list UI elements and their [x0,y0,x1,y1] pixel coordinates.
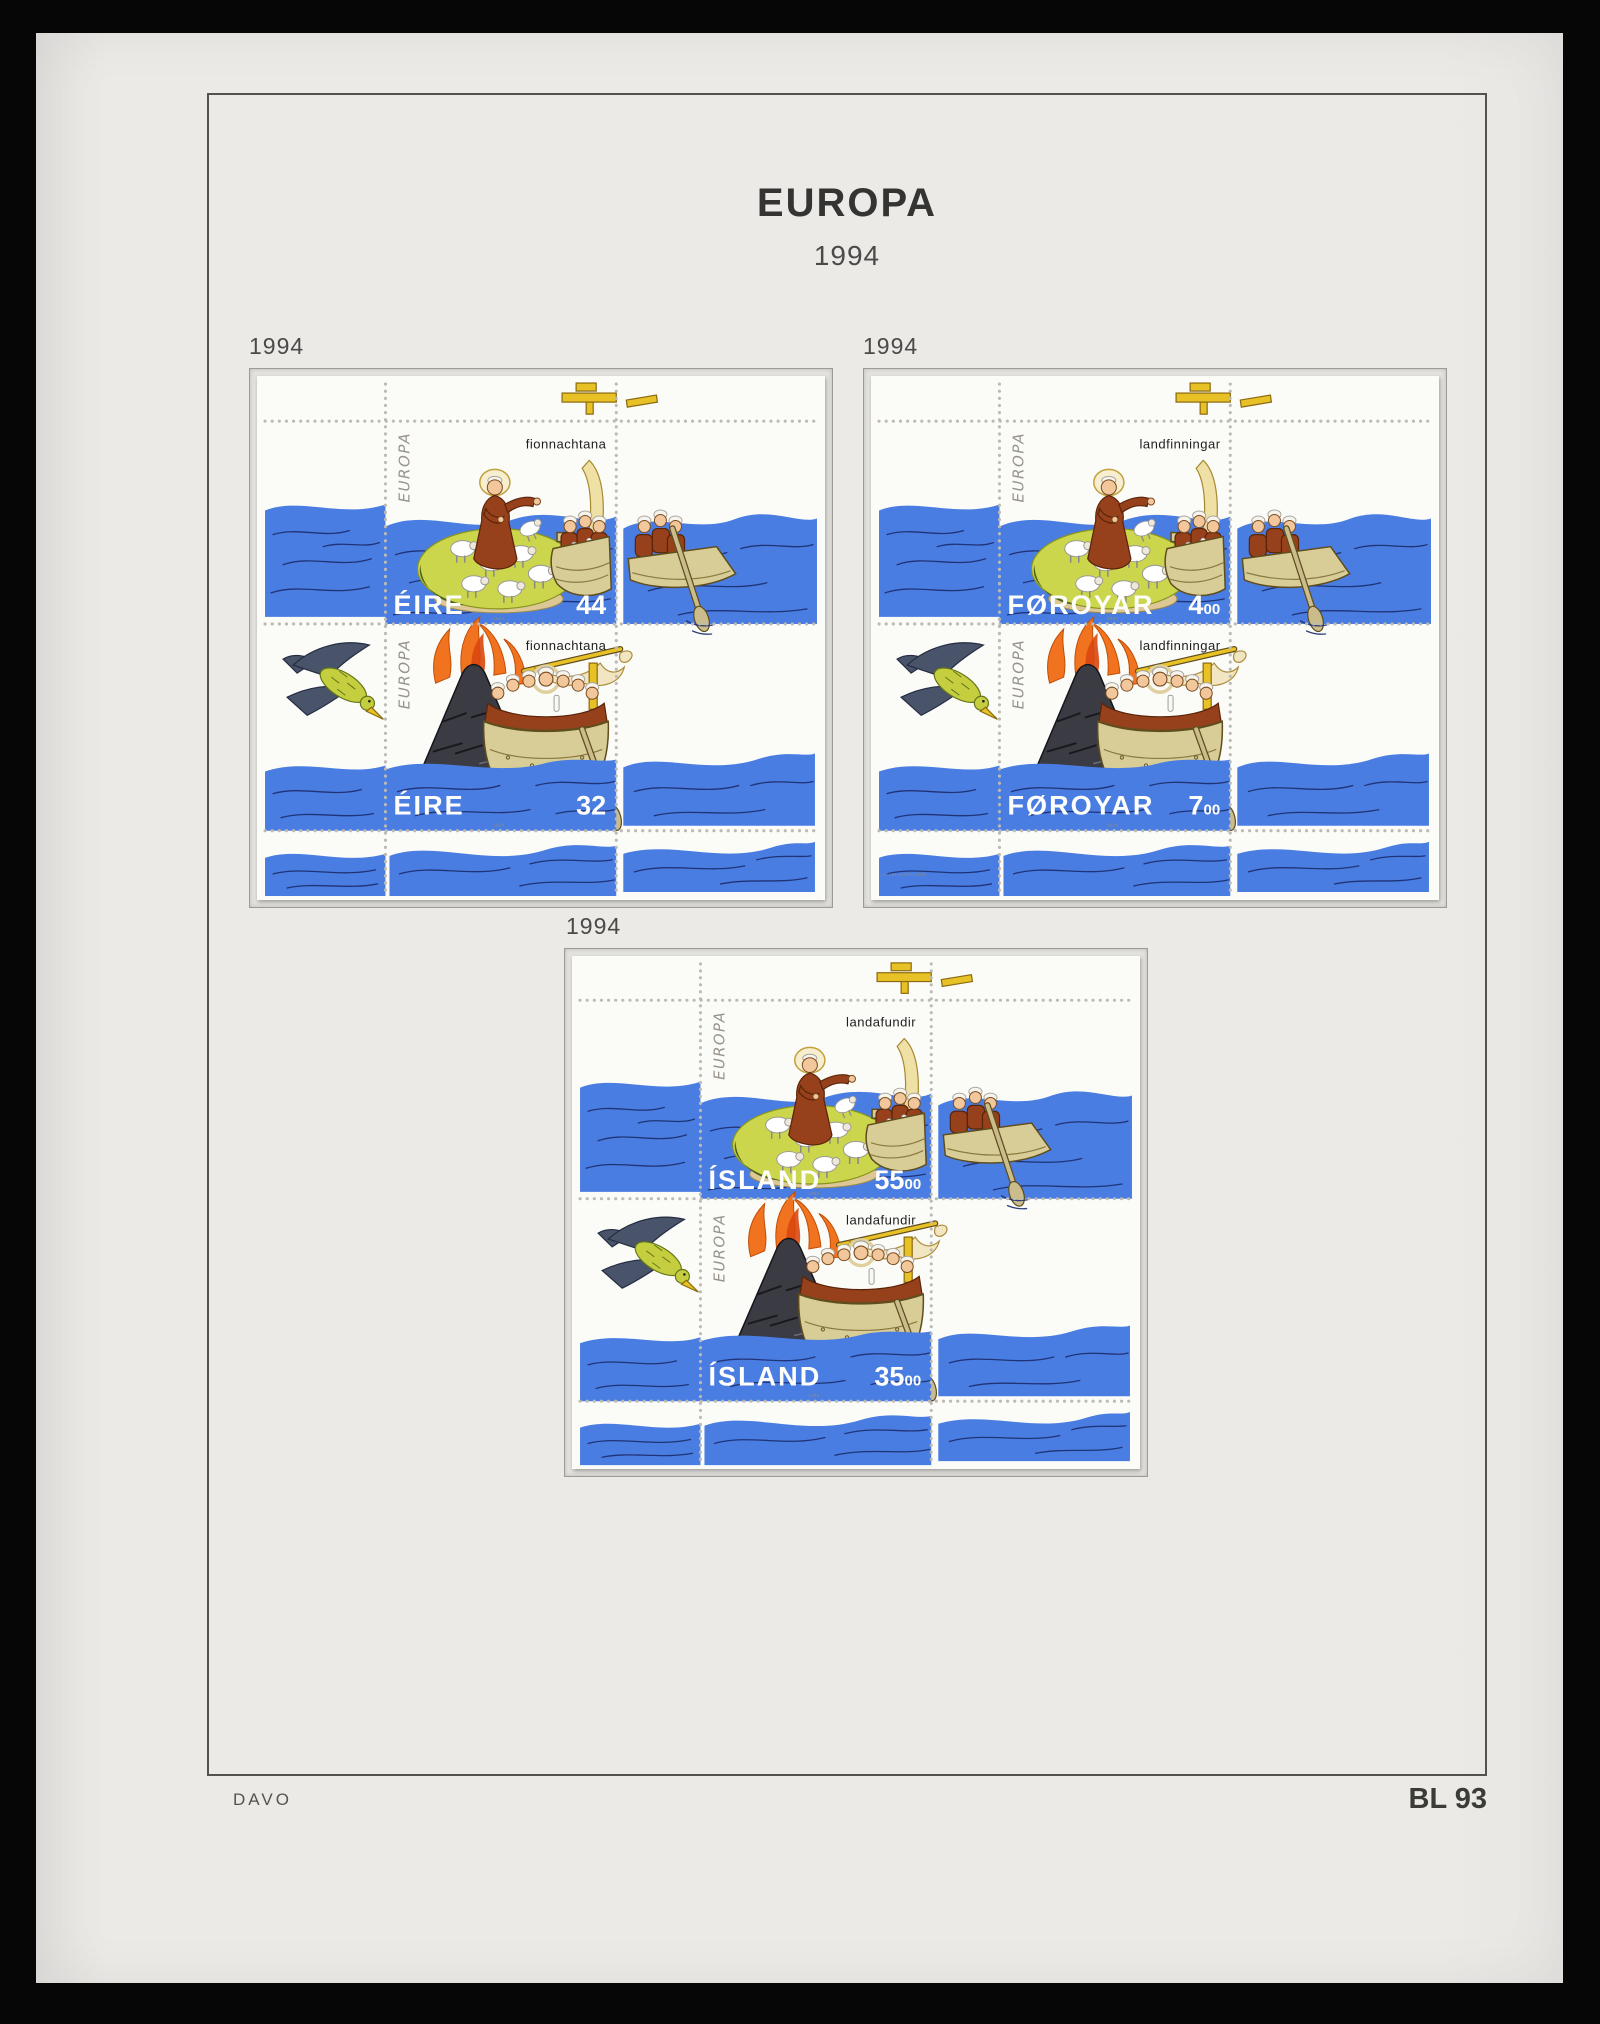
country-name: ÉIRE [393,790,464,821]
stamp-caption: landfinningar [1140,436,1221,451]
page-header: EUROPA 1994 [207,181,1487,272]
europa-logo-text: EUROPA [1010,639,1028,709]
page-subtitle: 1994 [207,240,1487,272]
europa-logo-text: EUROPA [710,1213,728,1282]
album-page: EUROPA 1994 1994 EUROPA EUROPA fionnacht… [36,33,1563,1983]
stamp-sheet-art: EUROPA EUROPA fionnachtana fionnachtana … [257,376,825,900]
block-year-label: 1994 [566,913,621,940]
europa-logo-text: EUROPA [396,432,414,502]
stamp-caption: landafundir [846,1015,916,1030]
page-frame [207,93,1487,1776]
country-name: ÍSLAND [708,1361,821,1392]
stamp-caption: fionnachtana [526,436,607,451]
europa-logo-text: EUROPA [710,1011,728,1080]
souvenir-sheet: EUROPA EUROPA fionnachtana fionnachtana … [257,376,825,900]
stamp-mount: EUROPA EUROPA landafundir landafundir ÍS… [564,948,1148,1477]
souvenir-sheet: EUROPA EUROPA landafundir landafundir ÍS… [572,956,1140,1469]
micro-year: 1994 [1107,823,1119,828]
stamp-caption: landafundir [846,1212,916,1227]
block-year-label: 1994 [863,333,918,360]
micro-year: 1994 [808,1393,820,1398]
stamp-mount: EUROPA EUROPA landfinningar landfinninga… [863,368,1447,908]
stamp-mount: EUROPA EUROPA fionnachtana fionnachtana … [249,368,833,908]
page-number: BL 93 [1409,1783,1487,1816]
block-year-label: 1994 [249,333,304,360]
country-name: FØROYAR [1007,790,1154,821]
stamp-sheet-art: EUROPA EUROPA landafundir landafundir ÍS… [572,956,1140,1469]
country-name: ÍSLAND [708,1164,821,1195]
micro-year: 1994 [493,616,505,621]
souvenir-sheet: EUROPA EUROPA landfinningar landfinninga… [871,376,1439,900]
micro-year: 1994 [1107,616,1119,621]
denomination: 32 [576,790,606,821]
stamp-sheet-art: EUROPA EUROPA landfinningar landfinninga… [871,376,1439,900]
europa-logo-text: EUROPA [1010,432,1028,502]
publisher-mark: DAVO [233,1790,292,1810]
designer-credit: COLIN HARRISON [881,872,925,877]
country-name: FØROYAR [1007,589,1154,620]
stamp-caption: fionnachtana [526,638,607,653]
denomination: 44 [576,589,606,620]
page-title: EUROPA [207,181,1487,226]
europa-logo-text: EUROPA [396,639,414,709]
stamp-caption: landfinningar [1140,638,1221,653]
micro-year: 1994 [493,823,505,828]
micro-year: 1994 [808,1191,820,1196]
country-name: ÉIRE [393,589,464,620]
album-photo: EUROPA 1994 1994 EUROPA EUROPA fionnacht… [0,0,1600,2024]
